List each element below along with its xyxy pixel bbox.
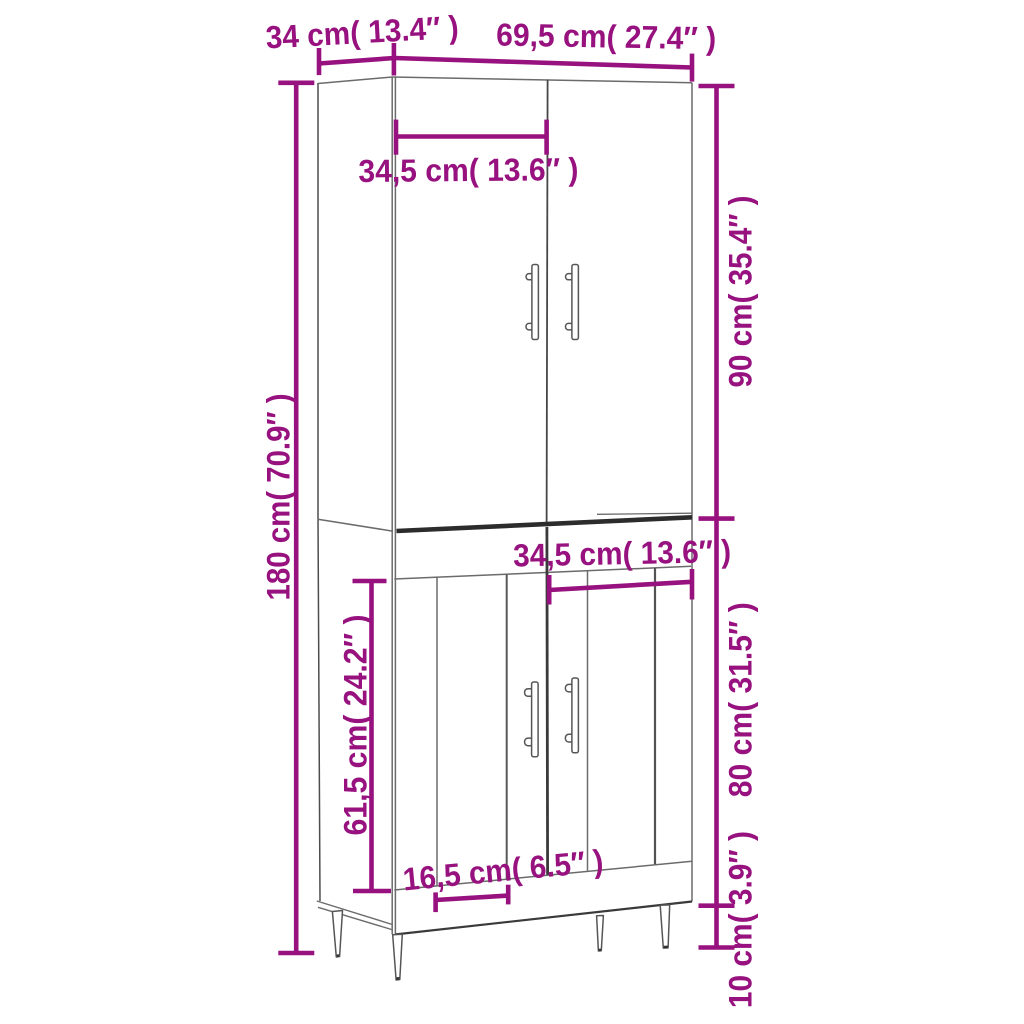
svg-text:69,5 cm( 27.4″ ): 69,5 cm( 27.4″ ) [496, 17, 717, 57]
svg-text:10 cm( 3.9″ ): 10 cm( 3.9″ ) [723, 831, 759, 1008]
svg-text:61,5 cm( 24.2″ ): 61,5 cm( 24.2″ ) [338, 615, 374, 836]
svg-text:34,5 cm( 13.6″ ): 34,5 cm( 13.6″ ) [358, 151, 578, 189]
svg-text:180 cm( 70.9″ ): 180 cm( 70.9″ ) [261, 394, 297, 601]
svg-text:34,5 cm( 13.6″ ): 34,5 cm( 13.6″ ) [513, 533, 732, 574]
svg-text:90 cm( 35.4″ ): 90 cm( 35.4″ ) [723, 196, 759, 388]
svg-text:80 cm( 31.5″ ): 80 cm( 31.5″ ) [723, 602, 759, 797]
